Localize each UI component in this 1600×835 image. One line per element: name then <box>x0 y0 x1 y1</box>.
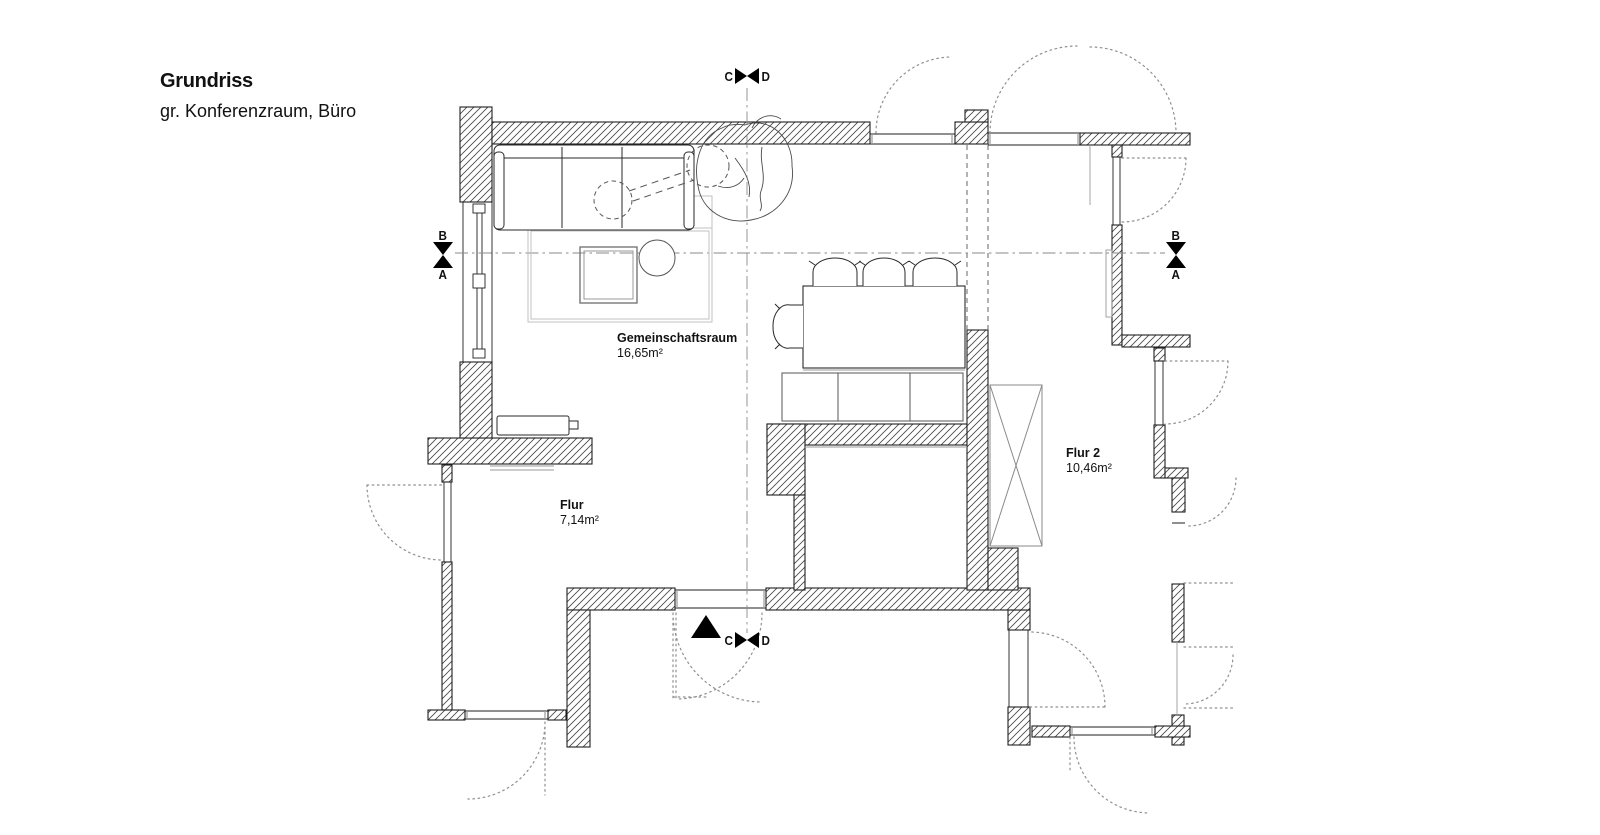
pouf <box>639 240 675 276</box>
section-arrow-right-icon <box>735 68 747 84</box>
radiator <box>497 416 578 435</box>
room-label-flur-2: Flur 2 10,46m² <box>1066 446 1112 476</box>
sofa <box>494 145 694 230</box>
section-label-a: A <box>437 268 449 281</box>
page-subtitle: gr. Konferenzraum, Büro <box>160 102 356 122</box>
room-label-flur: Flur 7,14m² <box>560 498 599 528</box>
entrance-triangle <box>691 615 721 638</box>
room-name: Flur <box>560 498 599 513</box>
room-label-gemeinschaftsraum: Gemeinschaftsraum 16,65m² <box>617 331 737 361</box>
room-name: Flur 2 <box>1066 446 1112 461</box>
section-marker-cd-top: C D <box>722 68 773 84</box>
section-label-d: D <box>760 70 772 83</box>
section-label-d: D <box>760 634 772 647</box>
section-marker-cd-bottom: C D <box>722 632 773 648</box>
section-label-a: A <box>1170 268 1182 281</box>
floor-plan-page: Grundriss gr. Konferenzraum, Büro Gemein… <box>0 0 1600 835</box>
section-label-c: C <box>723 70 735 83</box>
sideboard <box>782 373 963 421</box>
section-arrow-left-icon <box>747 632 759 648</box>
x-shaft <box>990 385 1042 546</box>
conference-table <box>803 286 965 370</box>
section-arrow-down-icon <box>1166 242 1186 255</box>
side-table <box>580 247 637 303</box>
section-marker-ba-right: B A <box>1166 229 1186 281</box>
floor-plan-drawing <box>0 0 1600 835</box>
section-arrow-left-icon <box>747 68 759 84</box>
dashed-overhead-lines <box>967 145 988 330</box>
page-title: Grundriss <box>160 70 356 92</box>
room-area: 16,65m² <box>617 346 737 361</box>
room-area: 7,14m² <box>560 513 599 528</box>
room-area: 10,46m² <box>1066 461 1112 476</box>
section-arrow-right-icon <box>735 632 747 648</box>
section-label-b: B <box>1170 229 1182 242</box>
section-arrow-down-icon <box>433 242 453 255</box>
section-marker-ba-left: B A <box>433 229 453 281</box>
title-block: Grundriss gr. Konferenzraum, Büro <box>160 70 356 122</box>
room-name: Gemeinschaftsraum <box>617 331 737 346</box>
section-label-b: B <box>437 229 449 242</box>
section-label-c: C <box>723 634 735 647</box>
